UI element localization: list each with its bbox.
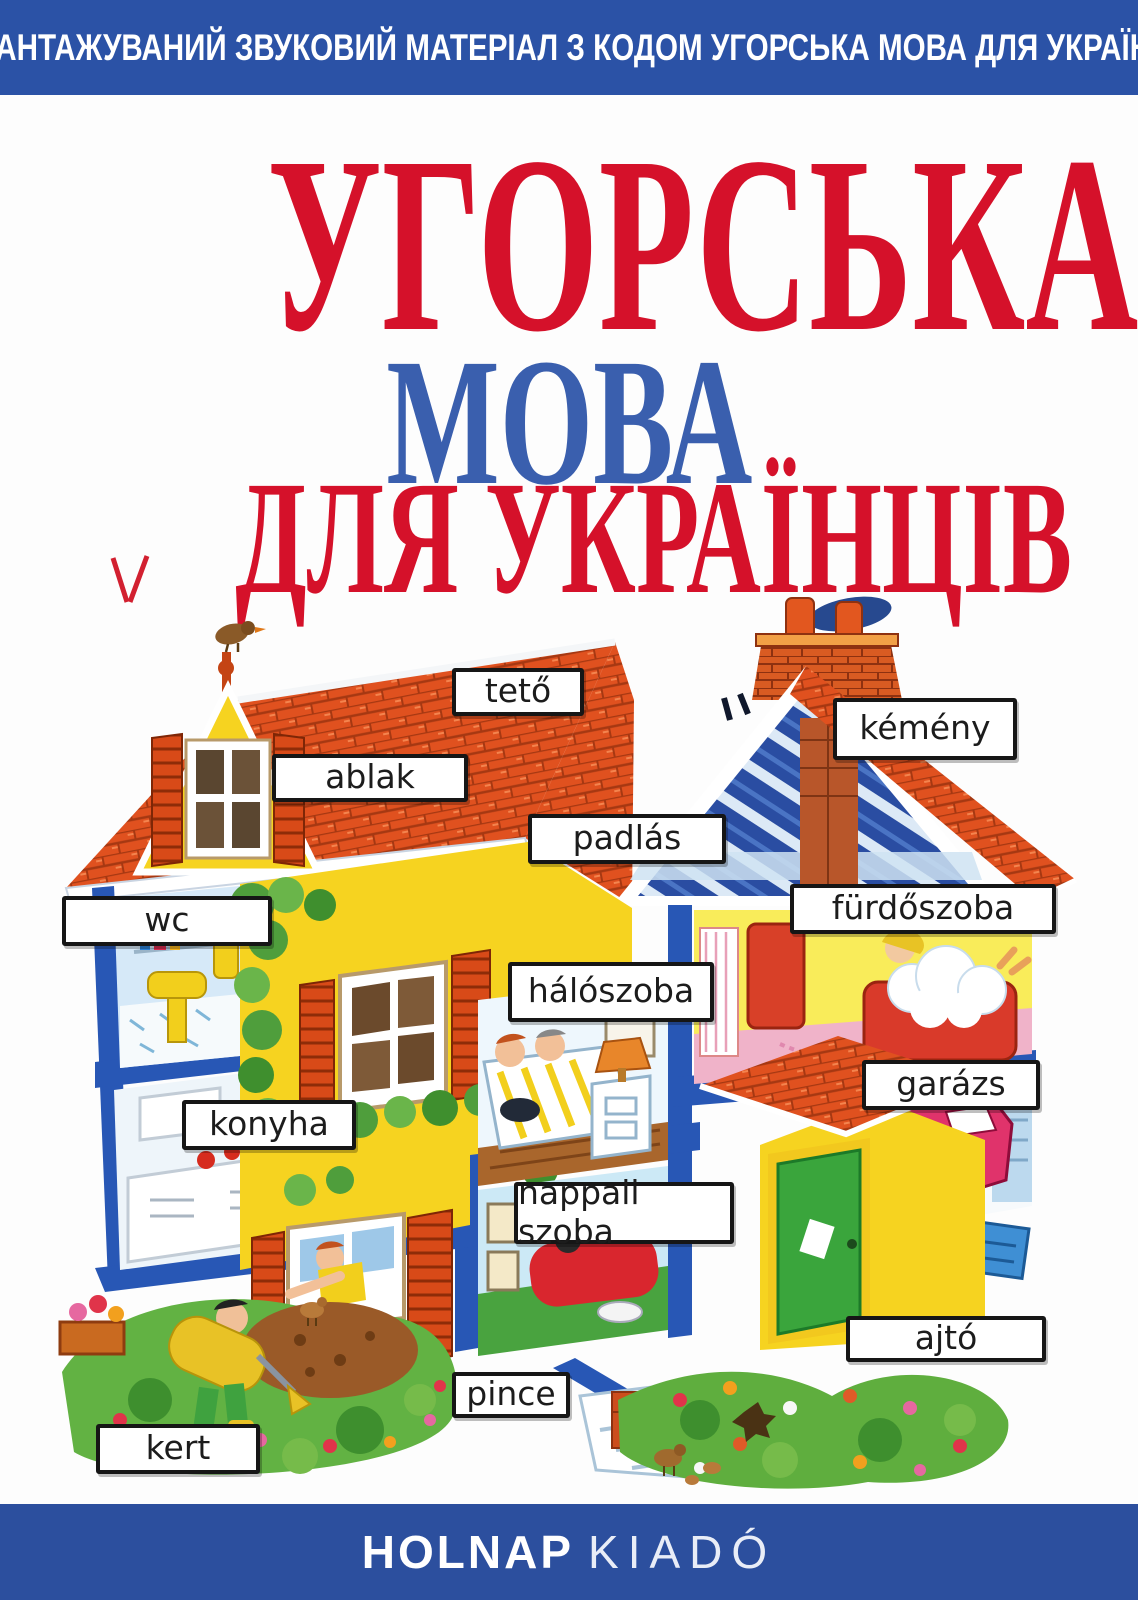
label-furdoszoba: fürdőszoba: [790, 884, 1056, 934]
label-wc: wc: [62, 896, 272, 946]
bird-on-dormer-icon: [213, 620, 266, 652]
publisher-name-light: KIADÓ: [588, 1525, 776, 1579]
label-kert: kert: [96, 1424, 260, 1474]
book-cover: ЗАВАНТАЖУВАНИЙ ЗВУКОВИЙ МАТЕРІАЛ З КОДОМ…: [0, 0, 1138, 1600]
antenna-mark: [113, 556, 147, 602]
label-haloszoba: hálószoba: [508, 962, 714, 1022]
label-kemeny: kémény: [833, 698, 1017, 760]
label-pince: pince: [452, 1372, 570, 1418]
label-padlas: padlás: [528, 814, 726, 864]
label-konyha: konyha: [182, 1100, 356, 1150]
label-ajto: ajtó: [846, 1316, 1046, 1362]
label-garazs: garázs: [862, 1060, 1040, 1110]
publisher-bar: HOLNAP KIADÓ: [0, 1504, 1138, 1600]
label-nappali-szoba: nappali szoba: [514, 1182, 734, 1244]
label-ablak: ablak: [272, 754, 468, 802]
publisher-name-bold: HOLNAP: [362, 1525, 574, 1579]
garden-right: [618, 1372, 1008, 1489]
label-teto: tető: [452, 668, 584, 716]
